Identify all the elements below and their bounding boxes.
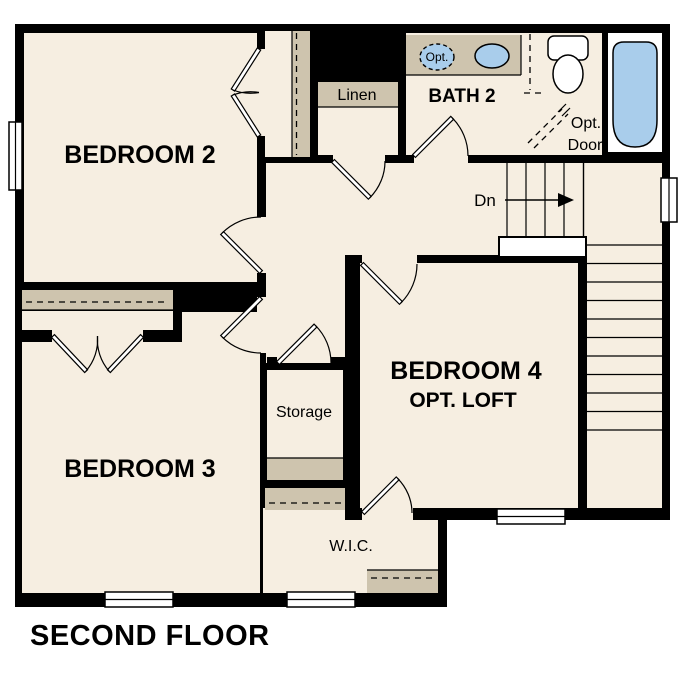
linen-label: Linen xyxy=(337,87,376,104)
bedroom3-floor xyxy=(22,312,260,593)
bedroom3-closet-shelf xyxy=(22,290,173,330)
stairs-right-floor xyxy=(587,238,662,434)
bedroom2-window xyxy=(9,122,22,190)
optional-door-label-line2: Door xyxy=(568,137,603,154)
floor-plan: Dn xyxy=(0,0,687,687)
bedroom3-window xyxy=(105,592,173,607)
bathtub-icon xyxy=(608,33,662,152)
bedroom4-label: BEDROOM 4 xyxy=(390,357,542,385)
optional-sink-label: Opt. xyxy=(426,50,449,64)
bath-vanity xyxy=(406,35,521,75)
bedroom4-floor xyxy=(360,263,578,508)
stair-window xyxy=(661,178,677,222)
bedroom2-closet-floor xyxy=(265,31,292,157)
wic-shelf-left xyxy=(265,488,345,510)
wic-label: W.I.C. xyxy=(329,538,373,555)
bedroom2-closet-shelf xyxy=(292,31,310,157)
storage-label: Storage xyxy=(276,404,332,421)
stair-landing-upper xyxy=(583,163,662,245)
optional-door-label-line1: Opt. xyxy=(571,115,601,132)
wic-window xyxy=(287,592,355,607)
bedroom4-window xyxy=(497,509,565,524)
bath2-label: BATH 2 xyxy=(428,86,495,107)
bedroom2-label: BEDROOM 2 xyxy=(64,141,215,169)
floor-plan-drawing: Dn xyxy=(0,0,687,687)
stairs-down-label: Dn xyxy=(474,191,496,210)
sink-icon xyxy=(475,44,509,68)
stairs-bottom-open xyxy=(587,434,662,508)
wic-shelf-right xyxy=(367,570,438,593)
bedroom3-label: BEDROOM 3 xyxy=(64,455,215,483)
bedroom4-sublabel: OPT. LOFT xyxy=(409,389,517,412)
stair-landing xyxy=(499,237,586,257)
plan-title: SECOND FLOOR xyxy=(30,620,270,652)
storage-shelf xyxy=(267,458,343,480)
